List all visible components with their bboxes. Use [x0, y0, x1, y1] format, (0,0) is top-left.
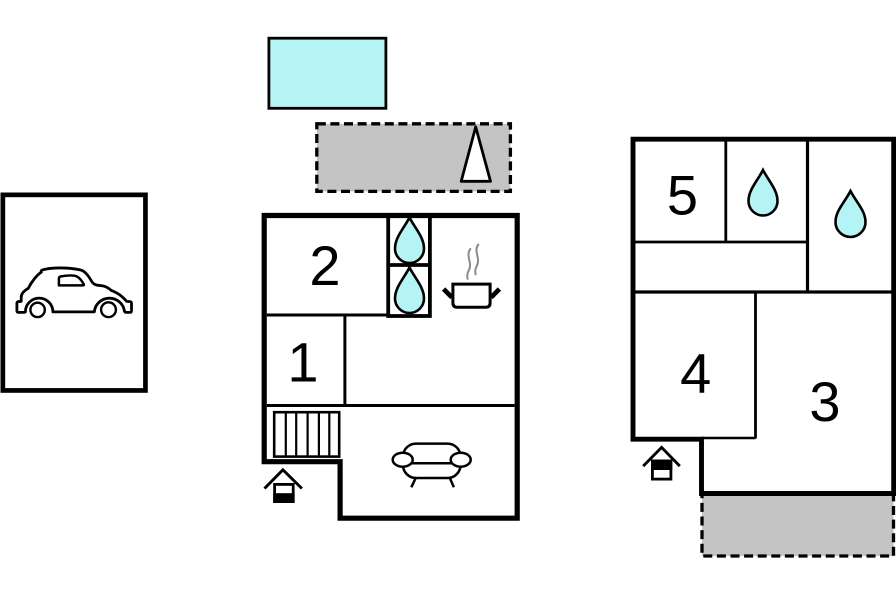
svg-text:5: 5 [667, 164, 698, 227]
svg-text:3: 3 [809, 370, 840, 433]
svg-text:4: 4 [680, 341, 711, 404]
svg-text:2: 2 [309, 234, 340, 297]
svg-text:1: 1 [287, 331, 318, 394]
